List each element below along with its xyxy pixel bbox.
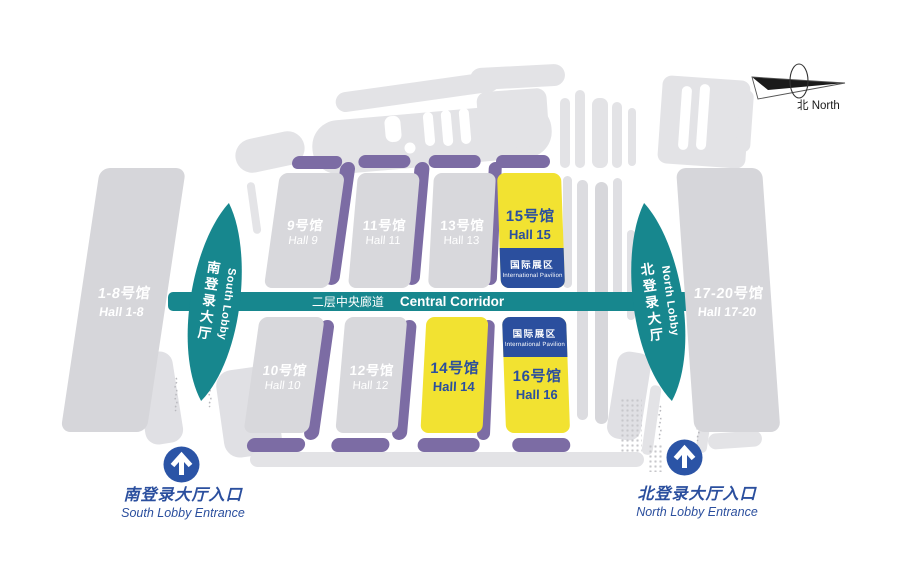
corridor-name-zh: 二层中央廊道 (312, 293, 384, 310)
hall-11-name-en: Hall 11 (365, 235, 401, 247)
hall-13-name-zh: 13号馆 (440, 214, 485, 234)
hall-1-8-name-en: Hall 1-8 (98, 305, 145, 319)
stairs-dots-decor (648, 444, 664, 472)
south-entrance-en: South Lobby Entrance (88, 506, 278, 520)
hall-14-name-zh: 14号馆 (430, 357, 480, 378)
pier-decor (496, 155, 550, 168)
hall-16-label: 16号馆 Hall 16 (504, 357, 569, 433)
south-entrance-label: 南登录大厅入口 South Lobby Entrance (88, 481, 278, 520)
north-entrance-en: North Lobby Entrance (602, 505, 792, 519)
international-pavilion-zh: 国际展区 (510, 257, 555, 271)
corridor-name-en: Central Corridor (400, 294, 504, 309)
hall-10-name-en: Hall 10 (264, 380, 301, 392)
hall-15: 15号馆 Hall 15 国际展区 International Pavilion (497, 173, 565, 288)
hall-12: 12号馆 Hall 12 (335, 317, 407, 433)
pier-decor (291, 156, 343, 169)
international-pavilion-badge: 国际展区 International Pavilion (500, 248, 565, 288)
hall-15-name-zh: 15号馆 (506, 205, 555, 226)
wing-hall-17-20-label: 17-20号馆 Hall 17-20 (692, 282, 765, 319)
wing-hall-1-8-label: 1-8号馆 Hall 1-8 (94, 282, 152, 319)
hall-14: 14号馆 Hall 14 (420, 317, 488, 433)
lower-walkway-decor (250, 452, 644, 467)
south-entrance-zh: 南登录大厅入口 (88, 481, 278, 505)
hall-15-name-en: Hall 15 (509, 227, 551, 242)
hall-13: 13号馆 Hall 13 (428, 173, 496, 288)
hall-11-name-zh: 11号馆 (362, 214, 407, 234)
hall-1-8-name-zh: 1-8号馆 (97, 282, 153, 303)
north-entrance-label: 北登录大厅入口 North Lobby Entrance (602, 480, 792, 519)
north-entrance-arrow-icon (666, 439, 703, 476)
hall-15-label: 15号馆 Hall 15 (498, 173, 563, 248)
hall-12-name-en: Hall 12 (352, 380, 389, 392)
hall-16-name-zh: 16号馆 (513, 365, 562, 386)
pier-decor (512, 438, 570, 452)
exhibition-venue-map: 1-8号馆 Hall 1-8 17-20号馆 Hall 17-20 9号馆 Ha… (0, 0, 919, 579)
north-label: 北 North (797, 97, 877, 113)
international-pavilion-zh: 国际展区 (512, 326, 557, 340)
pier-decor (331, 438, 390, 452)
pier-decor (358, 155, 411, 168)
pier-decor (246, 438, 306, 452)
hall-17-20-name-zh: 17-20号馆 (693, 282, 764, 303)
international-pavilion-en: International Pavilion (505, 342, 565, 348)
pier-decor (417, 438, 480, 452)
pier-decor (428, 155, 481, 168)
international-pavilion-badge: 国际展区 International Pavilion (502, 317, 567, 357)
hall-11: 11号馆 Hall 11 (348, 173, 420, 288)
hall-14-name-en: Hall 14 (432, 379, 475, 394)
international-pavilion-en: International Pavilion (502, 273, 562, 279)
hall-9-name-en: Hall 9 (287, 235, 318, 247)
hall-12-name-zh: 12号馆 (349, 359, 395, 379)
hall-16: 国际展区 International Pavilion 16号馆 Hall 16 (502, 317, 570, 433)
south-entrance-arrow-icon (163, 446, 200, 483)
north-entrance-zh: 北登录大厅入口 (602, 480, 792, 504)
hall-9-name-zh: 9号馆 (286, 214, 325, 234)
hall-17-20-name-en: Hall 17-20 (697, 305, 757, 319)
hall-13-name-en: Hall 13 (443, 235, 479, 247)
hall-16-name-en: Hall 16 (516, 387, 558, 402)
hall-10-name-zh: 10号馆 (262, 359, 309, 379)
